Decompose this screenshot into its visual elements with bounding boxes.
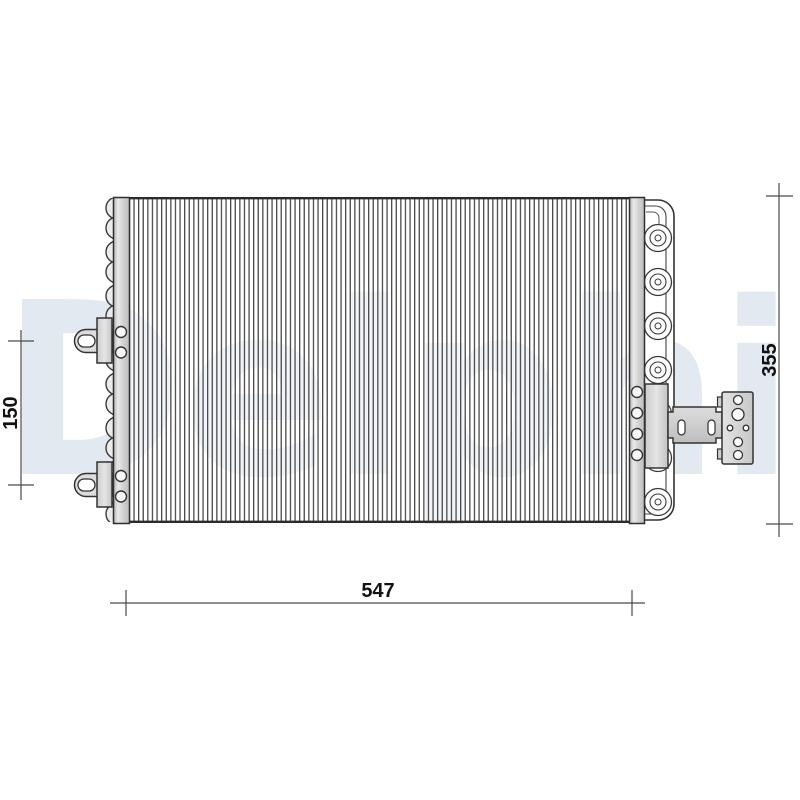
bracket-lug-slot	[78, 335, 95, 347]
condenser-core	[113, 198, 645, 522]
bracket-lug-slot	[78, 479, 95, 491]
condenser-drawing: Delphi	[0, 0, 800, 800]
right-tank	[644, 200, 674, 520]
dimension-bracket-spacing-label: 150	[0, 396, 22, 429]
dimension-width-label: 547	[361, 580, 394, 602]
right-side-plate	[630, 198, 645, 524]
bracket-plate	[97, 462, 112, 507]
bracket-plate	[97, 318, 112, 363]
fitting-plate	[645, 384, 668, 468]
dimension-height-label: 355	[759, 343, 781, 376]
core-fins	[130, 198, 630, 522]
technical-drawing-canvas: Delphi	[0, 0, 800, 800]
